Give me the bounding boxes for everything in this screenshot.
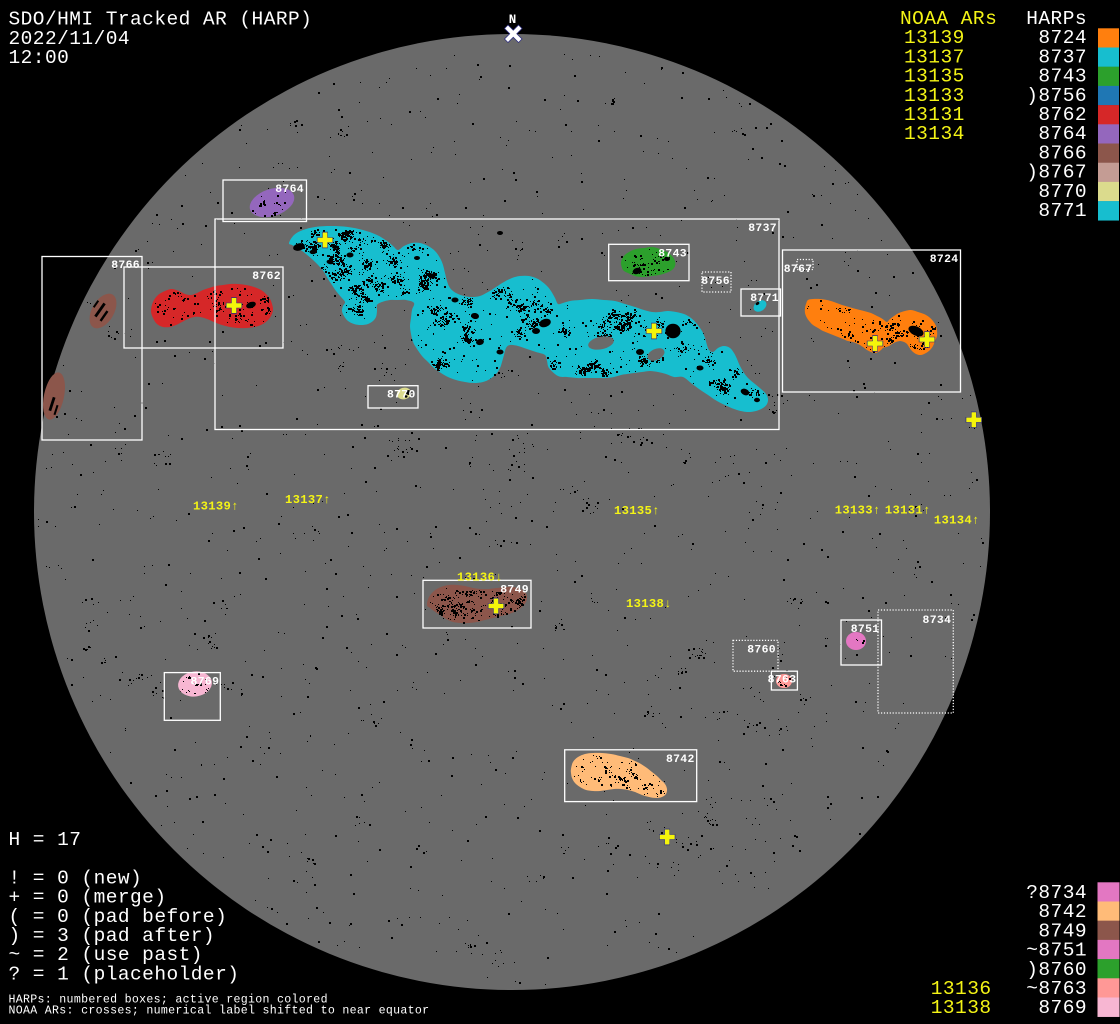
svg-text:13133↑: 13133↑ xyxy=(835,503,881,517)
svg-text:NOAA ARs: crosses; numerical l: NOAA ARs: crosses; numerical label shift… xyxy=(9,1004,430,1017)
svg-text:8764: 8764 xyxy=(275,184,304,196)
svg-text:13138↓: 13138↓ xyxy=(626,597,672,611)
svg-text:8763: 8763 xyxy=(768,674,797,686)
svg-text:13135↑: 13135↑ xyxy=(614,504,660,518)
svg-text:13138: 13138 xyxy=(931,997,992,1019)
svg-text:8749: 8749 xyxy=(500,584,529,596)
svg-text:8771: 8771 xyxy=(1038,200,1087,222)
svg-text:8742: 8742 xyxy=(666,754,695,766)
svg-text:8743: 8743 xyxy=(658,248,687,260)
svg-text:13131↑: 13131↑ xyxy=(885,503,931,517)
svg-text:12:00: 12:00 xyxy=(9,47,70,69)
svg-text:13137↑: 13137↑ xyxy=(285,493,331,507)
svg-text:? = 1 (placeholder): ? = 1 (placeholder) xyxy=(9,963,240,985)
svg-text:8769: 8769 xyxy=(1038,997,1087,1019)
svg-text:8737: 8737 xyxy=(748,223,777,235)
svg-text:13134↑: 13134↑ xyxy=(934,513,980,527)
svg-text:8767: 8767 xyxy=(784,264,813,276)
svg-text:8756: 8756 xyxy=(701,276,730,288)
svg-text:H = 17: H = 17 xyxy=(9,829,82,851)
svg-text:13139↑: 13139↑ xyxy=(193,500,239,514)
svg-text:8762: 8762 xyxy=(252,271,281,283)
svg-text:8766: 8766 xyxy=(111,260,140,272)
svg-text:8771: 8771 xyxy=(750,293,779,305)
svg-text:N: N xyxy=(509,13,517,27)
svg-text:8724: 8724 xyxy=(930,254,959,266)
svg-text:8760: 8760 xyxy=(747,645,776,657)
svg-text:8770: 8770 xyxy=(387,390,416,402)
svg-text:8769: 8769 xyxy=(191,677,220,689)
svg-text:13134: 13134 xyxy=(904,123,965,145)
svg-text:13136↓: 13136↓ xyxy=(457,570,503,584)
svg-text:8734: 8734 xyxy=(923,615,952,627)
svg-text:8751: 8751 xyxy=(851,624,880,636)
